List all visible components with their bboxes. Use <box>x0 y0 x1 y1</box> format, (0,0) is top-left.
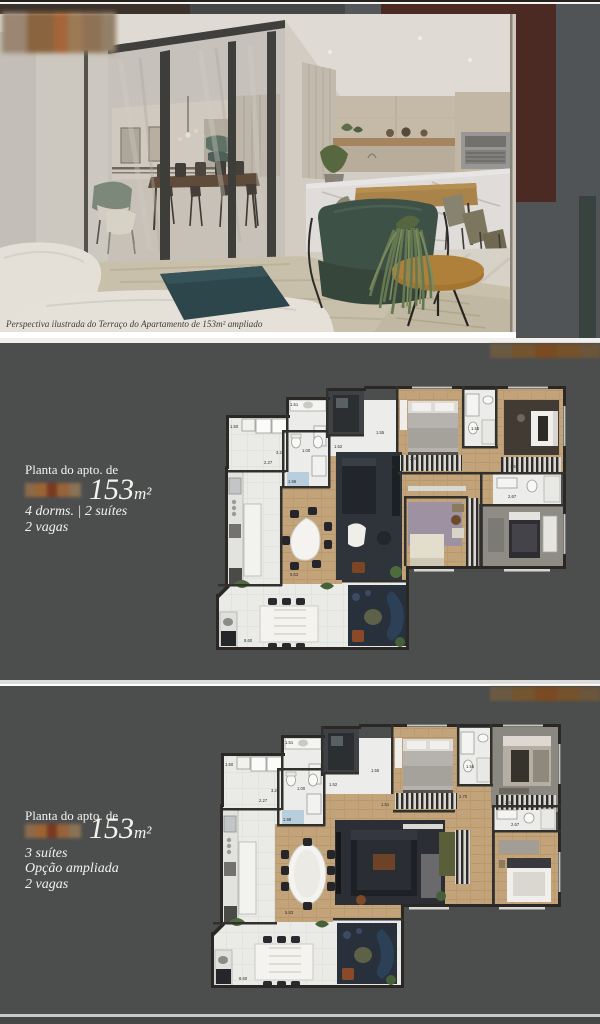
svg-text:1.55: 1.55 <box>371 768 380 773</box>
svg-text:1.58: 1.58 <box>386 464 395 469</box>
svg-text:3.25: 3.25 <box>276 450 285 455</box>
svg-text:1.55: 1.55 <box>376 430 385 435</box>
svg-text:2.27: 2.27 <box>264 460 273 465</box>
svg-text:3.25: 3.25 <box>271 788 280 793</box>
svg-text:1.52: 1.52 <box>329 782 338 787</box>
svg-text:1.51: 1.51 <box>381 802 390 807</box>
svg-text:1.51: 1.51 <box>290 402 299 407</box>
svg-text:1.50: 1.50 <box>225 762 234 767</box>
svg-text:1.51: 1.51 <box>285 740 294 745</box>
svg-text:8.60: 8.60 <box>239 976 248 981</box>
svg-text:Perspectiva ilustrada do Terra: Perspectiva ilustrada do Terraço do Apar… <box>5 319 263 329</box>
svg-text:1.55: 1.55 <box>466 764 475 769</box>
svg-text:8.60: 8.60 <box>244 638 253 643</box>
svg-text:1.00: 1.00 <box>302 448 311 453</box>
svg-text:1.52: 1.52 <box>334 444 343 449</box>
svg-text:2.40: 2.40 <box>505 800 514 805</box>
svg-text:1.50: 1.50 <box>230 424 239 429</box>
svg-text:2.49: 2.49 <box>410 456 419 461</box>
svg-text:2.67: 2.67 <box>508 494 517 499</box>
svg-text:5.83: 5.83 <box>285 910 294 915</box>
svg-text:2.70: 2.70 <box>459 794 468 799</box>
svg-text:1.98: 1.98 <box>283 817 292 822</box>
svg-text:1.58: 1.58 <box>510 464 519 469</box>
svg-text:1.00: 1.00 <box>297 786 306 791</box>
svg-text:1.98: 1.98 <box>288 479 297 484</box>
svg-text:1.55: 1.55 <box>471 426 480 431</box>
svg-text:5.63: 5.63 <box>290 572 299 577</box>
svg-text:2.67: 2.67 <box>511 822 520 827</box>
svg-text:2.27: 2.27 <box>259 798 268 803</box>
